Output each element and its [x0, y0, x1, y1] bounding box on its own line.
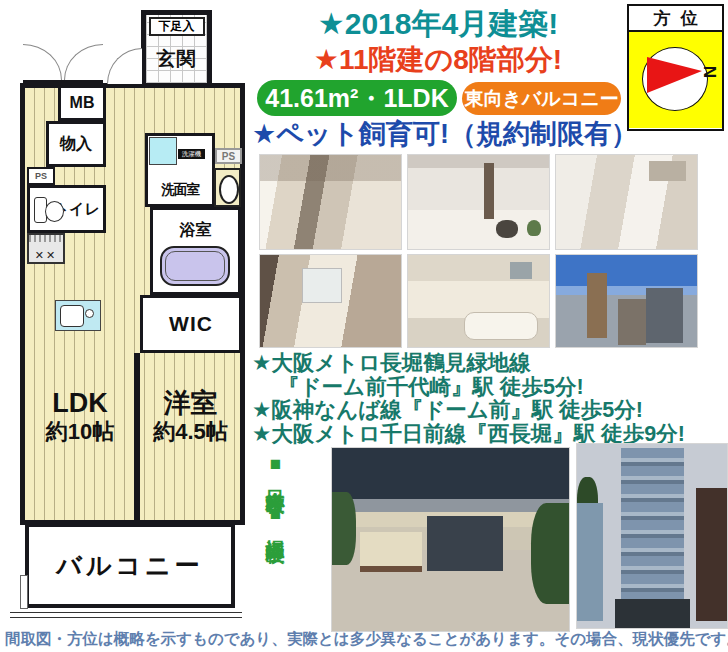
- western-label: 洋室: [138, 388, 243, 419]
- photo-balcony-view: [555, 254, 698, 348]
- kitchen-sink: [55, 300, 101, 331]
- bathroom-label: 浴室: [180, 220, 212, 241]
- washing-machine-pan: [149, 137, 177, 165]
- photo-detail: [577, 503, 603, 621]
- photo-detail: [646, 288, 683, 343]
- meter-box: MB: [58, 85, 106, 121]
- photo-bathroom: [407, 254, 550, 348]
- compass-circle-icon: [642, 47, 708, 111]
- station-line: 『ドーム前千代崎』駅 徒歩5分!: [252, 376, 728, 400]
- station-line: ★阪神なんば線『ドーム前』駅 徒歩5分!: [252, 399, 728, 423]
- photo-living-room: [407, 154, 550, 250]
- photo-kitchen-counter: [555, 154, 698, 250]
- photo-detail: [696, 488, 728, 620]
- compass-arrow-icon: [647, 57, 702, 93]
- shoe-storage-label: 下足入: [149, 17, 205, 36]
- compass-title: 方位: [629, 6, 722, 32]
- floor-plan: 下足入 玄関 MB 物入 PS トイレ 洗面室 洗濯機 PS 浴室 WIC ✕✕: [0, 0, 254, 630]
- school-districts: ■日吉小学校区 ■堀江中学校区: [261, 453, 285, 633]
- photo-detail: [531, 503, 569, 604]
- floor-position-headline: ★11階建の8階部分!: [252, 41, 624, 79]
- junior-high-district: ■堀江中学校区: [264, 503, 285, 531]
- photo-building-entrance: [331, 447, 570, 632]
- toilet-room: トイレ: [27, 185, 106, 233]
- walk-in-closet: WIC: [140, 295, 242, 353]
- balcony-direction-badge: 東向きバルコニー: [462, 82, 621, 115]
- photo-detail: [527, 220, 541, 236]
- station-line: ★大阪メトロ長堀鶴見緑地線: [252, 352, 728, 376]
- photo-living-dining-kitchen: [259, 154, 402, 250]
- photo-detail: [302, 268, 341, 303]
- photo-detail: [649, 161, 686, 182]
- plan-bottom-line: [10, 612, 242, 618]
- washer-label: 洗濯機: [178, 149, 205, 159]
- ldk-label: LDK: [25, 388, 135, 419]
- pipe-space-right: PS: [215, 148, 242, 164]
- built-year-headline: ★2018年4月建築!: [252, 4, 624, 45]
- photo-detail: [618, 299, 646, 345]
- elementary-school-district: ■日吉小学校区: [264, 453, 285, 481]
- photo-detail: [587, 273, 607, 337]
- pet-allowed-headline: ★ペット飼育可!（規約制限有）: [252, 116, 624, 152]
- interior-photo-grid: [259, 154, 698, 348]
- bathtub-icon: [160, 246, 230, 286]
- door-arc-icon: [23, 44, 62, 80]
- toilet-icon: [34, 197, 47, 223]
- photo-detail: [484, 163, 494, 219]
- real-estate-flyer: 下足入 玄関 MB 物入 PS トイレ 洗面室 洗濯機 PS 浴室 WIC ✕✕: [0, 0, 728, 652]
- balcony-partition: [20, 575, 28, 609]
- ldk-room-label: LDK 約10帖: [25, 388, 135, 445]
- area-layout-badge: 41.61m²・1LDK: [257, 80, 457, 116]
- washbasin-icon: [214, 168, 241, 207]
- north-mark: N: [699, 66, 719, 78]
- photo-detail: [621, 448, 684, 621]
- photo-vanity: [259, 254, 402, 348]
- sink-bowl-icon: [60, 305, 84, 327]
- balcony: バルコニー: [25, 525, 235, 608]
- station-access-list: ★大阪メトロ長堀鶴見緑地線 『ドーム前千代崎』駅 徒歩5分! ★阪神なんば線『ド…: [252, 352, 728, 447]
- photo-detail: [496, 220, 518, 238]
- pipe-space-left: PS: [27, 167, 55, 185]
- photo-detail: [464, 312, 537, 340]
- door-arc-icon: [64, 44, 103, 80]
- storage-room: 物入: [46, 121, 106, 167]
- faucet-icon: [85, 309, 94, 318]
- photo-detail: [510, 262, 533, 279]
- entrance-label: 玄関: [157, 46, 197, 72]
- photo-detail: [360, 532, 422, 572]
- compass-body: N: [629, 32, 722, 128]
- photo-detail: [332, 492, 356, 565]
- stove-icon: ✕✕: [27, 233, 65, 264]
- ldk-size-label: 約10帖: [25, 419, 135, 445]
- western-room-label: 洋室 約4.5帖: [138, 388, 243, 445]
- disclaimer-text: 間取図・方位は概略を示すものであり、実際とは多少異なることがあります。その場合、…: [5, 629, 727, 650]
- photo-detail: [427, 516, 503, 571]
- door-arc-icon: [107, 48, 142, 84]
- bathroom: 浴室: [150, 207, 241, 295]
- photo-detail: [615, 599, 690, 628]
- photo-building-exterior: [576, 443, 728, 629]
- entrance-hall: 下足入 玄関: [141, 10, 212, 88]
- western-size-label: 約4.5帖: [138, 419, 243, 445]
- compass: 方位 N: [627, 4, 724, 131]
- closet-doors: [23, 46, 103, 84]
